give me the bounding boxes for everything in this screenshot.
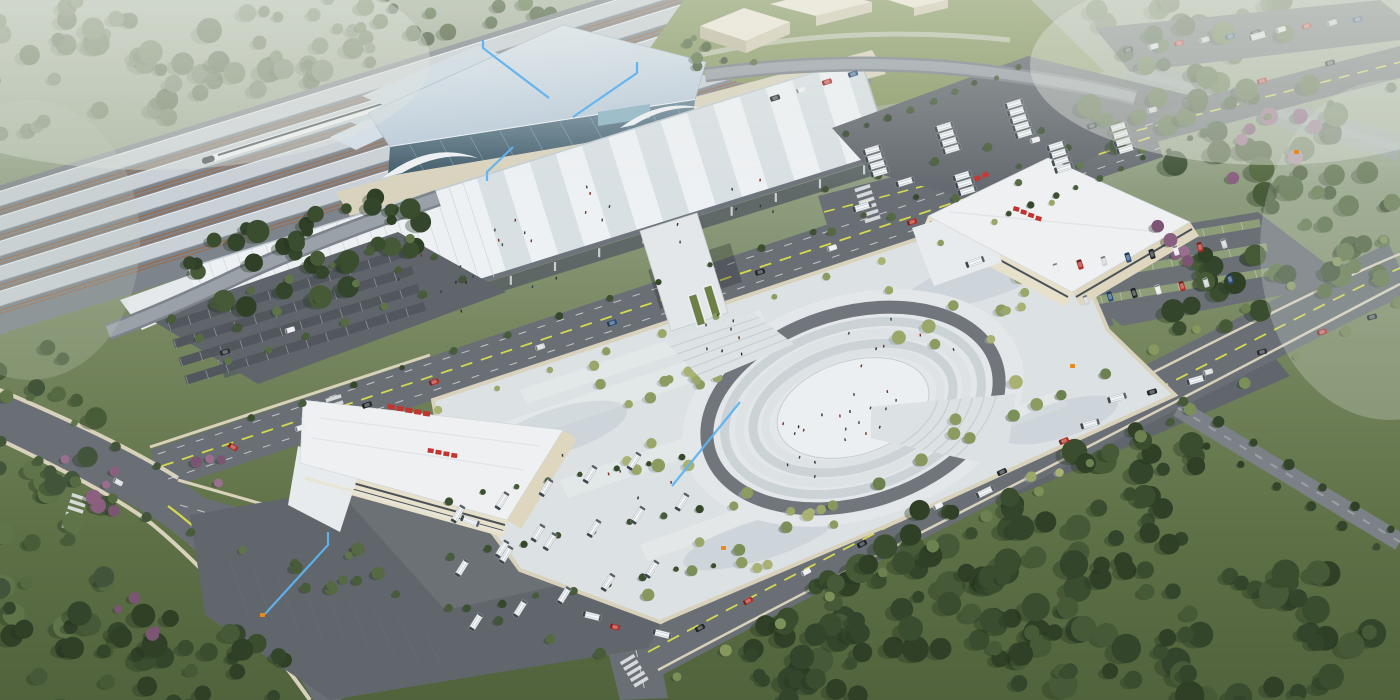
tree xyxy=(1093,557,1110,574)
tree xyxy=(504,331,511,338)
tree xyxy=(1139,584,1155,600)
tree xyxy=(1035,511,1056,532)
tree xyxy=(826,679,847,700)
tree xyxy=(1179,665,1197,683)
tree xyxy=(926,540,939,553)
tree xyxy=(1086,459,1094,467)
tree xyxy=(129,592,141,604)
tree xyxy=(1009,375,1023,389)
tree xyxy=(494,386,500,392)
tree xyxy=(1151,220,1164,233)
tree xyxy=(922,319,936,333)
tree xyxy=(480,489,486,495)
person xyxy=(670,481,672,484)
person xyxy=(886,390,888,393)
tree xyxy=(679,454,686,461)
tree xyxy=(912,591,924,603)
person xyxy=(589,192,590,195)
tree xyxy=(720,644,732,656)
tree xyxy=(651,459,665,473)
person xyxy=(494,229,495,232)
person xyxy=(679,241,680,244)
tree xyxy=(1172,321,1186,335)
tree xyxy=(247,286,255,294)
tree xyxy=(964,432,976,444)
person xyxy=(821,413,822,416)
tree xyxy=(233,323,242,332)
tree xyxy=(878,568,888,578)
tree xyxy=(372,567,385,580)
tree xyxy=(183,256,196,269)
tree xyxy=(289,236,305,252)
tree xyxy=(33,456,43,466)
tree xyxy=(231,639,253,661)
tree xyxy=(229,664,245,680)
tree xyxy=(205,455,214,464)
tree xyxy=(71,419,78,426)
tree xyxy=(1134,430,1146,442)
tree xyxy=(1056,390,1066,400)
tree xyxy=(772,294,778,300)
tree xyxy=(741,487,753,499)
tree xyxy=(200,643,218,661)
tree xyxy=(363,197,381,215)
tree xyxy=(660,512,667,519)
tree xyxy=(463,604,471,612)
tree xyxy=(1362,625,1377,640)
tree xyxy=(850,623,870,643)
tree xyxy=(137,676,157,696)
tree xyxy=(27,393,35,401)
tree xyxy=(1239,377,1251,389)
tree xyxy=(736,557,747,568)
tree xyxy=(1133,485,1155,507)
tree xyxy=(1272,559,1300,587)
tree xyxy=(861,212,867,218)
tree xyxy=(419,290,427,298)
tree xyxy=(655,279,661,285)
tree xyxy=(131,604,155,628)
tree xyxy=(310,251,325,266)
tree xyxy=(382,237,401,256)
tree xyxy=(195,334,204,343)
tree xyxy=(1022,593,1050,621)
tree xyxy=(1100,368,1111,379)
tree xyxy=(142,512,152,522)
tree xyxy=(162,610,179,627)
tree xyxy=(711,563,716,568)
tree xyxy=(1123,487,1136,500)
tree xyxy=(991,219,997,225)
tree xyxy=(285,275,294,284)
tree xyxy=(892,551,915,574)
tree xyxy=(392,590,400,598)
person xyxy=(839,415,841,418)
tree xyxy=(775,618,786,629)
tree xyxy=(673,566,678,571)
tree xyxy=(1307,633,1325,651)
tree xyxy=(1026,471,1037,482)
tree xyxy=(302,332,309,339)
person xyxy=(858,421,860,424)
tree xyxy=(271,648,287,664)
tree xyxy=(733,544,745,556)
tree xyxy=(1289,589,1307,607)
person xyxy=(865,432,866,435)
tree xyxy=(351,543,364,556)
tree xyxy=(114,605,122,613)
tree xyxy=(1062,663,1077,678)
tree xyxy=(1318,483,1326,491)
person xyxy=(738,336,740,339)
tree xyxy=(217,455,226,464)
tree xyxy=(827,574,845,592)
tree xyxy=(1318,664,1344,690)
tree xyxy=(63,533,76,546)
tree xyxy=(86,490,101,505)
canopy-column xyxy=(554,262,556,271)
tree xyxy=(514,484,520,490)
tree xyxy=(1034,486,1044,496)
tree xyxy=(85,407,107,429)
tree xyxy=(1108,530,1124,546)
tree xyxy=(965,527,977,539)
tree xyxy=(1137,561,1154,578)
tree xyxy=(484,545,492,553)
tree xyxy=(873,477,886,490)
tree xyxy=(24,534,41,551)
tree xyxy=(236,296,257,317)
person xyxy=(502,243,503,246)
tree xyxy=(316,266,329,279)
tree xyxy=(1090,499,1107,516)
tree xyxy=(1057,597,1079,619)
tree xyxy=(997,572,1010,585)
tree xyxy=(350,381,357,388)
tree xyxy=(602,347,610,355)
tree xyxy=(547,367,553,373)
tree xyxy=(307,206,323,222)
tree xyxy=(595,379,606,390)
tree xyxy=(1055,468,1064,477)
tree xyxy=(1046,624,1062,640)
tree xyxy=(763,560,773,570)
tree xyxy=(0,390,13,404)
tree xyxy=(853,642,873,662)
tree xyxy=(930,339,941,350)
tree xyxy=(276,282,293,299)
tree xyxy=(224,357,232,365)
tree xyxy=(806,669,826,689)
tree xyxy=(1192,325,1201,334)
tree xyxy=(624,400,632,408)
tree xyxy=(248,414,255,421)
tree xyxy=(980,510,992,522)
tree xyxy=(153,462,161,470)
tree xyxy=(915,453,928,466)
tree xyxy=(577,472,582,477)
tree xyxy=(1219,319,1233,333)
tree xyxy=(146,627,160,641)
tree xyxy=(1017,302,1026,311)
tree xyxy=(246,220,269,243)
orange-marker xyxy=(721,546,726,550)
tree xyxy=(822,273,830,281)
tree xyxy=(758,244,766,252)
tree xyxy=(948,427,961,440)
tree xyxy=(885,286,893,294)
tree xyxy=(93,566,114,587)
tree xyxy=(1139,523,1159,543)
tree xyxy=(594,648,606,660)
tree xyxy=(191,456,202,467)
tree xyxy=(1006,211,1012,217)
tree xyxy=(825,592,835,602)
tree xyxy=(20,576,33,589)
tree xyxy=(892,331,906,345)
tree xyxy=(545,634,555,644)
tree xyxy=(646,461,651,466)
tree xyxy=(1025,546,1046,567)
tree xyxy=(400,198,421,219)
tree xyxy=(381,303,389,311)
tree xyxy=(1373,543,1380,550)
tree xyxy=(15,620,34,639)
tree xyxy=(1165,583,1181,599)
tree xyxy=(1387,526,1394,533)
tree xyxy=(930,638,952,660)
tree xyxy=(790,645,815,670)
tree xyxy=(185,664,198,677)
tree xyxy=(1060,550,1089,579)
person xyxy=(601,219,603,222)
tree xyxy=(1020,288,1029,297)
tree xyxy=(913,194,919,200)
tree xyxy=(178,640,194,656)
tree xyxy=(329,262,335,268)
tree xyxy=(1152,498,1172,518)
tree xyxy=(642,589,654,601)
tree xyxy=(1237,461,1244,468)
tree xyxy=(1203,442,1210,449)
tree xyxy=(1178,397,1188,407)
tree xyxy=(445,604,453,612)
tree xyxy=(695,537,705,547)
canopy-column xyxy=(731,207,733,216)
tree xyxy=(781,521,793,533)
tree xyxy=(62,637,84,659)
rendering-stage xyxy=(0,0,1400,700)
tree xyxy=(494,616,503,625)
tree xyxy=(729,501,738,510)
tree xyxy=(909,500,929,520)
tree xyxy=(1027,201,1034,208)
tree xyxy=(402,242,419,259)
tree xyxy=(352,576,362,586)
tree xyxy=(1049,200,1055,206)
canopy-column xyxy=(510,276,512,285)
tree xyxy=(948,300,959,311)
tree xyxy=(314,296,322,304)
tree xyxy=(339,575,348,584)
tree xyxy=(752,563,762,573)
tree xyxy=(1071,616,1097,642)
tree xyxy=(802,509,814,521)
tree xyxy=(646,438,656,448)
tree xyxy=(900,524,922,546)
tree xyxy=(209,301,217,309)
tree xyxy=(1000,488,1019,507)
tree xyxy=(607,295,614,302)
tree xyxy=(687,565,698,576)
tree xyxy=(556,312,564,320)
tree xyxy=(1187,457,1205,475)
tree xyxy=(44,473,66,495)
tree xyxy=(366,246,375,255)
tree xyxy=(817,505,826,514)
tree xyxy=(673,672,682,681)
tree xyxy=(1102,663,1118,679)
tree xyxy=(111,442,121,452)
tree xyxy=(950,413,962,425)
person xyxy=(562,454,563,457)
tree xyxy=(987,335,996,344)
tree xyxy=(110,466,120,476)
tree xyxy=(1213,416,1225,428)
tree xyxy=(1101,443,1119,461)
tree xyxy=(1241,303,1251,313)
tree xyxy=(352,280,360,288)
tree xyxy=(1002,306,1011,315)
tree xyxy=(1306,501,1316,511)
tree xyxy=(898,616,923,641)
tree xyxy=(1182,297,1200,315)
tree xyxy=(1124,671,1142,689)
tree xyxy=(272,307,282,317)
tree xyxy=(77,446,98,467)
tree xyxy=(1182,255,1194,267)
tree xyxy=(67,601,91,625)
tree xyxy=(1008,410,1020,422)
tree xyxy=(944,505,959,520)
tree xyxy=(498,600,506,608)
tree xyxy=(708,262,713,267)
tree xyxy=(326,581,335,590)
tree xyxy=(291,559,298,566)
tree xyxy=(745,648,759,662)
tree xyxy=(395,266,402,273)
canopy-column xyxy=(598,248,600,257)
tree xyxy=(1263,677,1284,698)
orange-marker xyxy=(1070,364,1075,368)
tree xyxy=(1010,643,1033,666)
tree xyxy=(845,657,858,670)
tree xyxy=(61,455,70,464)
tree xyxy=(937,592,961,616)
tree xyxy=(645,392,656,403)
person xyxy=(845,428,847,431)
tree xyxy=(345,551,353,559)
tree xyxy=(589,361,599,371)
tree xyxy=(520,541,527,548)
tree xyxy=(787,507,796,516)
tree xyxy=(62,512,83,533)
tree xyxy=(805,623,827,645)
tree xyxy=(1337,521,1347,531)
tree xyxy=(405,234,414,243)
tree xyxy=(100,675,115,690)
canopy-column xyxy=(775,193,777,202)
tree xyxy=(1159,534,1180,555)
tree xyxy=(207,233,222,248)
tree xyxy=(570,587,578,595)
tree xyxy=(445,497,453,505)
tree xyxy=(265,347,272,354)
tree xyxy=(301,583,311,593)
tree xyxy=(757,674,770,687)
tree xyxy=(828,500,838,510)
tree xyxy=(1163,233,1177,247)
tree xyxy=(70,394,83,407)
tree xyxy=(830,520,839,529)
tree xyxy=(533,592,539,598)
person xyxy=(472,275,474,278)
tree xyxy=(108,505,120,517)
tree xyxy=(1112,634,1141,663)
tree xyxy=(450,347,458,355)
tree xyxy=(1272,482,1281,491)
tree xyxy=(659,376,670,387)
tree xyxy=(1053,192,1060,199)
tree xyxy=(51,386,66,401)
tree xyxy=(1159,629,1177,647)
tree xyxy=(108,493,118,503)
person xyxy=(706,347,708,350)
tree xyxy=(1009,515,1034,540)
tree xyxy=(1306,560,1330,584)
tree xyxy=(400,365,405,370)
tree xyxy=(30,668,47,685)
tree xyxy=(873,534,898,559)
tree xyxy=(446,553,454,561)
tree xyxy=(167,314,176,323)
tree xyxy=(340,258,356,274)
tree xyxy=(1011,675,1027,691)
tree xyxy=(1030,398,1043,411)
person xyxy=(760,204,762,207)
tree xyxy=(1283,459,1294,470)
tree xyxy=(1157,463,1170,476)
tree xyxy=(1178,627,1194,643)
person xyxy=(732,319,734,322)
tree xyxy=(1338,632,1364,658)
tree xyxy=(887,213,895,221)
tree xyxy=(878,257,886,265)
person xyxy=(705,323,707,326)
tree xyxy=(1148,344,1159,355)
tree xyxy=(1182,606,1198,622)
tree xyxy=(1179,432,1204,457)
tree xyxy=(341,203,352,214)
person xyxy=(895,399,897,402)
tree xyxy=(810,229,816,235)
tree xyxy=(431,253,438,260)
person xyxy=(730,328,732,331)
tree xyxy=(1166,418,1174,426)
tree xyxy=(238,546,246,554)
tree xyxy=(434,406,442,414)
tree xyxy=(187,528,195,536)
